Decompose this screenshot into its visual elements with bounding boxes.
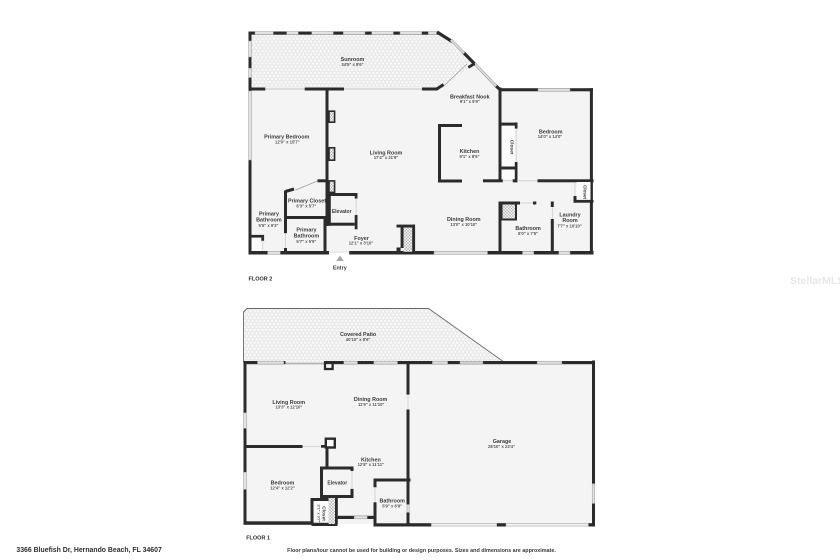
svg-text:9'1" x 9'9": 9'1" x 9'9"	[460, 99, 480, 104]
svg-text:14'0" x 14'0": 14'0" x 14'0"	[538, 134, 563, 139]
svg-text:28'10" x 23'4": 28'10" x 23'4"	[488, 444, 515, 449]
svg-text:Floor plans/tour cannot be use: Floor plans/tour cannot be used for buil…	[287, 548, 556, 554]
svg-text:34'5" x 8'6": 34'5" x 8'6"	[341, 62, 363, 67]
svg-text:8'0" x 7'5": 8'0" x 7'5"	[518, 231, 538, 236]
svg-text:Elevator: Elevator	[332, 209, 352, 215]
svg-text:13'3" x 12'10": 13'3" x 12'10"	[275, 405, 302, 410]
svg-text:9'1" x 8'5": 9'1" x 8'5"	[460, 154, 480, 159]
svg-text:Closet: Closet	[583, 185, 588, 200]
svg-text:Primary: Primary	[296, 227, 316, 233]
svg-text:12'0" x 15'7": 12'0" x 15'7"	[275, 139, 300, 144]
svg-text:11'9" x 11'10": 11'9" x 11'10"	[358, 402, 384, 407]
svg-text:6'3" x 5'7": 6'3" x 5'7"	[296, 203, 316, 208]
svg-text:StellarMLS: StellarMLS	[790, 275, 840, 287]
svg-text:17'4" x 21'9": 17'4" x 21'9"	[374, 155, 399, 160]
svg-text:Elevator: Elevator	[327, 480, 347, 486]
svg-text:5'5" x 9'3": 5'5" x 9'3"	[259, 223, 279, 228]
svg-text:12'4" x 12'2": 12'4" x 12'2"	[270, 486, 295, 491]
svg-text:7'7" x 10'10": 7'7" x 10'10"	[557, 224, 582, 229]
svg-text:5'9" x 6'9": 5'9" x 6'9"	[382, 504, 402, 509]
svg-text:3366 Bluefish Dr, Hernando Bea: 3366 Bluefish Dr, Hernando Beach, FL 346…	[16, 547, 162, 554]
svg-text:Closet: Closet	[508, 140, 514, 155]
svg-text:FLOOR 2: FLOOR 2	[249, 276, 273, 282]
svg-text:FLOOR 1: FLOOR 1	[246, 536, 270, 542]
svg-text:40'10" x 8'6": 40'10" x 8'6"	[346, 337, 371, 342]
svg-text:13'0" x 10'10": 13'0" x 10'10"	[450, 222, 477, 227]
svg-text:Entry: Entry	[333, 266, 347, 272]
svg-text:2'1" x 3'7": 2'1" x 3'7"	[316, 504, 320, 522]
svg-text:Primary: Primary	[259, 212, 279, 218]
svg-text:12'1" x 3'10": 12'1" x 3'10"	[349, 241, 374, 246]
svg-text:12'8" x 11'11": 12'8" x 11'11"	[358, 462, 384, 467]
svg-text:5'7" x 5'9": 5'7" x 5'9"	[296, 239, 316, 244]
